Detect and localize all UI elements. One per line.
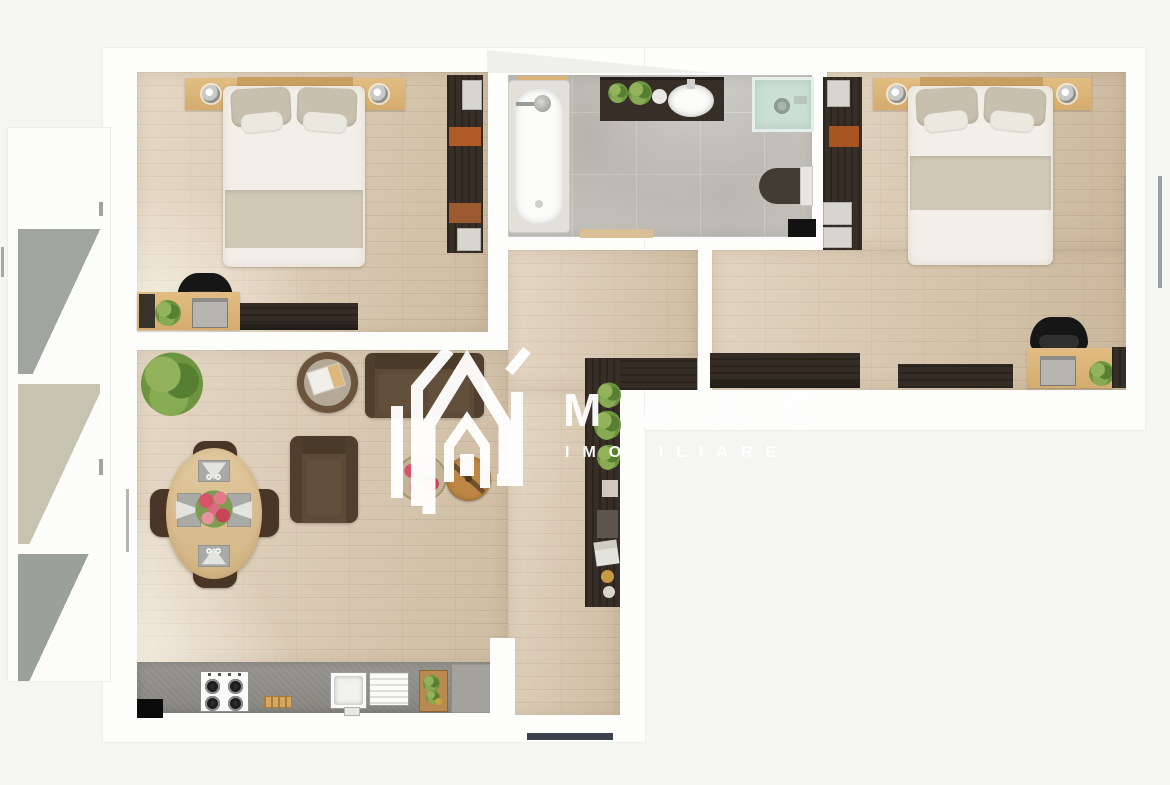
shelf-books <box>593 540 619 567</box>
sink-faucet <box>344 707 360 716</box>
desk-organizer <box>139 294 155 328</box>
potted-plant <box>141 352 203 416</box>
window-mark-outer <box>1158 176 1162 288</box>
burner <box>205 696 220 711</box>
balcony-door-mark <box>126 489 129 552</box>
balcony <box>8 128 110 681</box>
bedside-lamp <box>888 85 906 103</box>
wardrobe <box>823 77 862 250</box>
shelf-box <box>597 510 618 538</box>
watermark-tagline: IMOBILIARE <box>565 444 789 462</box>
armchair-armrest <box>346 436 358 523</box>
sink-drainer <box>369 672 409 706</box>
bath-drain <box>535 200 543 208</box>
floor-plan-render: MAAC IMOBILIARE <box>0 0 1170 785</box>
sofa-armrest <box>365 353 375 418</box>
bath-faucet-head <box>534 95 551 112</box>
wardrobe-box <box>823 227 852 248</box>
maac-logo <box>383 328 533 514</box>
placemat <box>198 460 230 482</box>
chair-seat <box>1039 335 1079 349</box>
kitchen-wall <box>490 638 515 732</box>
glass <box>215 548 221 554</box>
vanity-jar <box>652 89 667 104</box>
sink-faucet <box>687 79 695 89</box>
balcony-shadow-wedge <box>18 229 100 374</box>
toilet <box>759 168 803 204</box>
balcony-rail-mark <box>99 459 103 475</box>
burner <box>205 679 220 694</box>
double-bed <box>223 86 365 267</box>
wardrobe-box <box>827 80 850 107</box>
bathroom-door-threshold <box>580 229 653 238</box>
bath-mat <box>788 219 816 237</box>
sink-basin <box>330 672 367 709</box>
plant-pot <box>602 480 618 497</box>
shelf-decor <box>603 586 615 598</box>
small-pillow <box>989 110 1035 134</box>
entrance-door <box>527 733 613 740</box>
double-bed <box>908 86 1053 265</box>
bedside-lamp <box>1058 85 1076 103</box>
small-pillow <box>240 111 284 135</box>
vanity-plant <box>608 83 628 103</box>
bedside-lamp <box>202 85 220 103</box>
shower-head <box>774 98 790 114</box>
dresser <box>898 364 1013 388</box>
round-side-table <box>297 352 358 413</box>
bread-board <box>264 696 292 708</box>
window-mark-inner <box>1124 177 1126 287</box>
wardrobe-shelf-item <box>449 127 481 146</box>
book <box>306 362 346 395</box>
cutting-board-vegetables <box>419 670 448 712</box>
shower-cabin <box>752 77 814 132</box>
blanket-band <box>910 156 1051 210</box>
small-pillow <box>923 109 969 134</box>
wardrobe-box <box>457 228 481 251</box>
desk <box>137 292 240 330</box>
balcony-light-wedge <box>18 384 100 544</box>
napkin <box>198 460 230 482</box>
burner <box>228 696 243 711</box>
small-pillow <box>302 111 348 135</box>
sink-inner <box>334 676 363 705</box>
blanket-band <box>225 190 363 248</box>
desk-plant <box>155 300 181 326</box>
desk-plant <box>1089 361 1114 386</box>
tv-stand <box>240 303 358 330</box>
napkin <box>198 545 230 567</box>
cabinet-strip <box>1112 347 1126 388</box>
bathtub <box>508 80 570 233</box>
hob-controls <box>208 673 242 676</box>
balcony-rail-mark <box>99 202 103 216</box>
armchair-cushion <box>304 457 344 517</box>
wardrobe-shelf-item <box>449 203 481 223</box>
watermark-brand: MAAC <box>563 383 853 437</box>
balcony-outer-mark <box>1 247 4 277</box>
desk <box>1027 348 1113 388</box>
balcony-tiles <box>18 139 100 670</box>
printer <box>1040 356 1076 386</box>
balcony-shadow-wedge <box>18 554 100 681</box>
armchair <box>290 436 358 523</box>
vanity-counter <box>600 77 724 121</box>
printer <box>192 298 228 328</box>
glass <box>215 474 221 480</box>
wardrobe <box>447 75 483 253</box>
gas-hob <box>200 671 249 712</box>
vanity-plant <box>628 81 652 105</box>
shower-panel <box>794 96 807 104</box>
burner <box>228 679 243 694</box>
glass <box>206 548 212 554</box>
armchair-armrest <box>290 436 302 523</box>
placemat <box>198 545 230 567</box>
glass <box>206 474 212 480</box>
wardrobe-box <box>823 202 852 225</box>
toilet-tank <box>800 166 813 206</box>
wardrobe-shelf-item <box>829 126 859 147</box>
shelf-decor <box>601 570 614 583</box>
kitchen-floor-mat <box>137 699 163 718</box>
bedside-lamp <box>370 85 388 103</box>
flower-bouquet <box>192 486 236 532</box>
wardrobe-box <box>462 80 482 110</box>
tomato <box>435 698 442 705</box>
oval-dining-table <box>166 448 262 579</box>
